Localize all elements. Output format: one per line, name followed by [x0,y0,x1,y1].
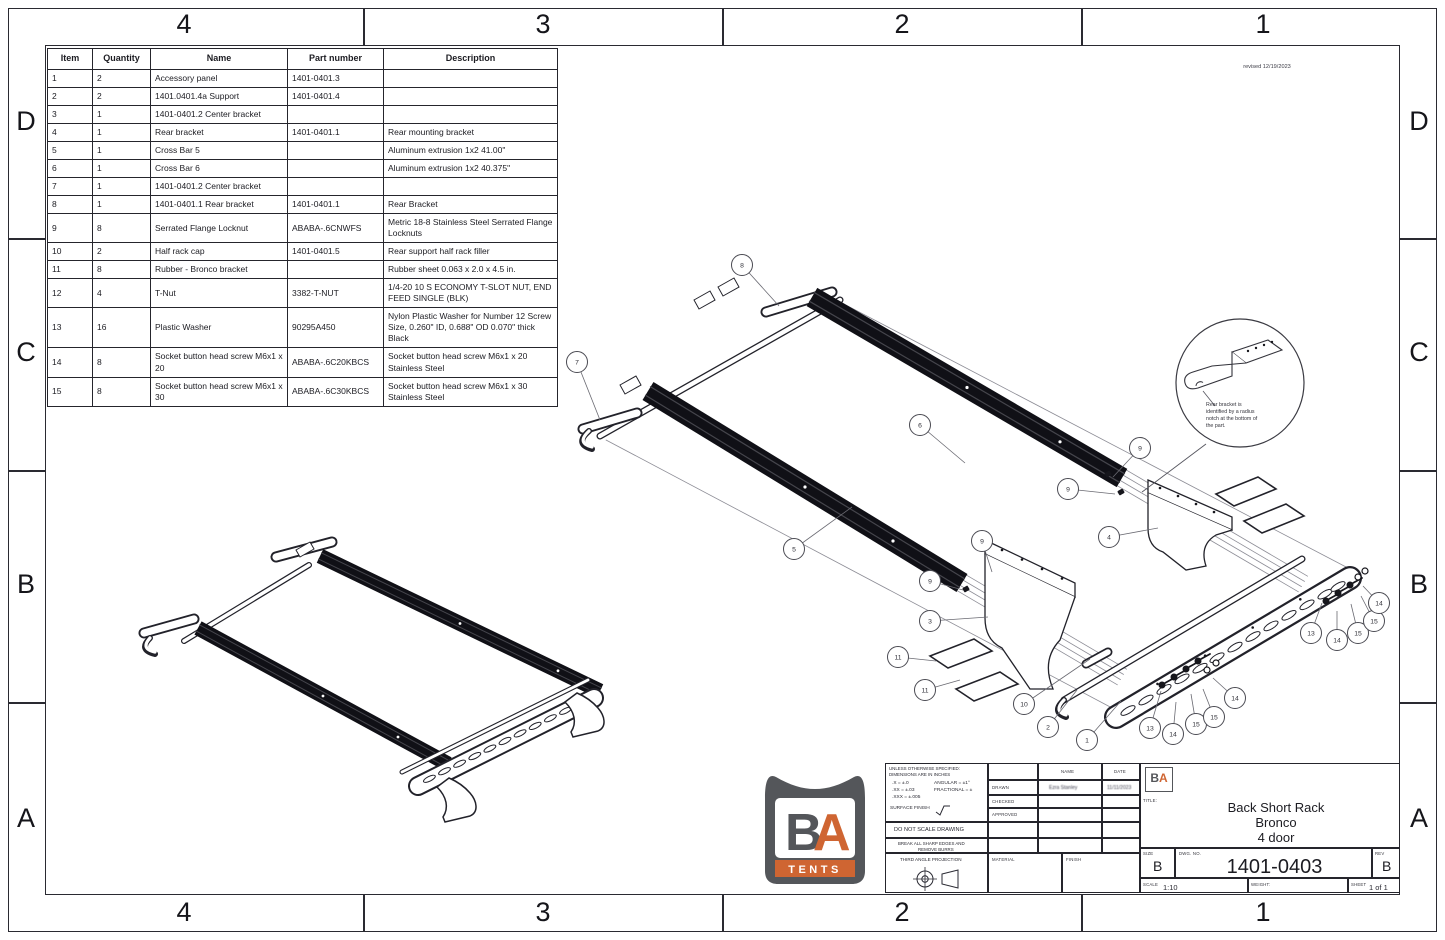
bom-cell-part: 1401-0401.4 [288,87,384,105]
svg-text:8: 8 [740,262,744,269]
bom-cell-item: 7 [48,177,93,195]
svg-text:3: 3 [928,618,932,625]
bom-cell-part: 3382-T-NUT [288,279,384,308]
bom-cell-part [288,141,384,159]
detail-text-line: identified by a radius [1206,409,1286,416]
svg-text:15: 15 [1210,714,1218,721]
half-rack-cap-shape [1086,652,1108,664]
material-cell: MATERIAL [988,853,1062,893]
bom-row: 158Socket button head screw M6x1 x 30ABA… [48,377,558,406]
balloon-14: 14 [1327,611,1348,651]
svg-text:9: 9 [928,578,932,585]
bom-cell-part: 1401-0401.3 [288,69,384,87]
bom-cell-qty: 8 [93,348,151,377]
bom-cell-qty: 1 [93,123,151,141]
bom-cell-qty: 2 [93,69,151,87]
bom-cell-name: Serrated Flange Locknut [151,214,288,243]
title-block: UNLESS OTHERWISE SPECIFIED: DIMENSIONS A… [885,763,1400,893]
finish-cell: FINISH [1062,853,1140,893]
balloon-14: 14 [1363,586,1390,614]
cross-bar-shape [196,625,449,767]
bom-cell-desc: Metric 18-8 Stainless Steel Serrated Fla… [384,214,558,243]
bom-cell-name: Socket button head screw M6x1 x 20 [151,348,288,377]
approved-name-cell [1038,808,1102,822]
bom-cell-desc: Rear mounting bracket [384,123,558,141]
bom-cell-part: 1401-0401.1 [288,196,384,214]
rev-cell: REV B [1372,848,1400,878]
bom-cell-qty: 2 [93,87,151,105]
bom-cell-qty: 8 [93,261,151,279]
blank-cell [1038,838,1102,853]
bom-row: 41Rear bracket1401-0401.1Rear mounting b… [48,123,558,141]
bom-cell-item: 5 [48,141,93,159]
bom-cell-qty: 2 [93,243,151,261]
weight-cell: WEIGHT: [1248,878,1348,893]
bom-cell-name: Socket button head screw M6x1 x 30 [151,377,288,406]
bom-cell-item: 13 [48,308,93,348]
bom-table: ItemQuantityNamePart numberDescription 1… [47,48,558,407]
bom-cell-item: 4 [48,123,93,141]
bom-cell-item: 15 [48,377,93,406]
checked-label-cell: CHECKED [988,795,1038,808]
balloon-11: 11 [915,680,961,701]
bom-cell-desc [384,177,558,195]
svg-text:14: 14 [1231,695,1239,702]
svg-text:14: 14 [1375,600,1383,607]
blank-cell [1102,838,1140,853]
bom-row: 124T-Nut3382-T-NUT1/4-20 10 S ECONOMY T-… [48,279,558,308]
svg-text:6: 6 [918,422,922,429]
bom-cell-part [288,261,384,279]
detail-callout-text: Rear bracket isidentified by a radiusnot… [1206,402,1286,430]
bom-header-cell: Item [48,49,93,70]
checked-name-cell [1038,795,1102,808]
detail-text-line: notch at the bottom of [1206,416,1286,423]
bom-cell-desc: Rubber sheet 0.063 x 2.0 x 4.5 in. [384,261,558,279]
drawn-date-cell: 11/11/2023 [1102,780,1140,795]
svg-text:15: 15 [1354,630,1362,637]
bom-header-cell: Description [384,49,558,70]
svg-text:2: 2 [1046,724,1050,731]
bom-cell-qty: 1 [93,177,151,195]
approved-date-cell [1102,808,1140,822]
balloon-9: 9 [1113,438,1151,478]
svg-text:4: 4 [1107,534,1111,541]
bom-row: 1316Plastic Washer90295A450Nylon Plastic… [48,308,558,348]
front-accessory-panel [418,698,594,786]
bom-cell-part: ABABA-.6C20KBCS [288,348,384,377]
balloon-15: 15 [1203,689,1225,728]
bom-cell-qty: 8 [93,214,151,243]
bom-cell-item: 10 [48,243,93,261]
size-cell: SIZE B [1140,848,1175,878]
bom-row: 61Cross Bar 6Aluminum extrusion 1x2 40.3… [48,159,558,177]
bom-cell-desc [384,69,558,87]
bom-cell-qty: 4 [93,279,151,308]
title-cell: BA TITLE: Back Short Rack Bronco 4 door [1140,763,1400,848]
detail-text-line: the part. [1206,423,1286,430]
bom-cell-qty: 8 [93,377,151,406]
svg-text:9: 9 [1138,445,1142,452]
third-angle-projection-icon [912,866,964,892]
bom-cell-desc: 1/4-20 10 S ECONOMY T-SLOT NUT, END FEED… [384,279,558,308]
balloon-11: 11 [888,647,937,668]
scale-cell: SCALE 1:10 [1140,878,1248,893]
bom-cell-item: 2 [48,87,93,105]
bom-cell-desc [384,87,558,105]
bom-row: 118Rubber - Bronco bracketRubber sheet 0… [48,261,558,279]
bom-cell-item: 6 [48,159,93,177]
bom-row: 51Cross Bar 5Aluminum extrusion 1x2 41.0… [48,141,558,159]
bom-cell-item: 3 [48,105,93,123]
bom-row: 98Serrated Flange LocknutABABA-.6CNWFSMe… [48,214,558,243]
drawn-name-cell: Ezra Stanley [1038,780,1102,795]
svg-text:9: 9 [980,538,984,545]
bom-row: 711401-0401.2 Center bracket [48,177,558,195]
balloon-14: 14 [1163,702,1184,745]
checked-date-cell [1102,795,1140,808]
center-bracket-shape [985,540,1075,689]
bom-cell-part: 1401-0401.1 [288,123,384,141]
blank-cell [988,822,1038,838]
blank-cell [1038,822,1102,838]
svg-text:15: 15 [1370,618,1378,625]
svg-text:1: 1 [1085,737,1089,744]
balloon-9: 9 [1058,479,1116,500]
bom-row: 221401.0401.4a Support1401-0401.4 [48,87,558,105]
bom-header-row: ItemQuantityNamePart numberDescription [48,49,558,70]
drawn-label-cell: DRAWN [988,780,1038,795]
balloon-8: 8 [732,255,780,307]
svg-text:5: 5 [792,546,796,553]
svg-text:13: 13 [1146,725,1154,732]
svg-text:15: 15 [1192,721,1200,728]
bom-row: 12Accessory panel1401-0401.3 [48,69,558,87]
svg-text:14: 14 [1169,731,1177,738]
name-date-header [988,763,1038,780]
bom-cell-name: 1401-0401.2 Center bracket [151,177,288,195]
small-logo: BA [1145,767,1173,792]
sheet-cell: SHEET 1 of 1 [1348,878,1400,893]
bom-cell-name: 1401-0401.2 Center bracket [151,105,288,123]
bom-cell-name: Half rack cap [151,243,288,261]
bom-cell-name: Accessory panel [151,69,288,87]
svg-text:9: 9 [1066,486,1070,493]
bom-row: 311401-0401.2 Center bracket [48,105,558,123]
small-logo-a: A [1159,771,1168,785]
blank-cell [988,838,1038,853]
bom-cell-part [288,177,384,195]
engineering-drawing-sheet: 4 3 2 1 4 3 2 1 D C B A D C B A revised … [0,0,1445,940]
balloon-14: 14 [1213,678,1246,709]
bom-cell-part: 1401-0401.5 [288,243,384,261]
bom-cell-part [288,105,384,123]
bom-cell-desc: Rear support half rack filler [384,243,558,261]
drawing-title: Back Short Rack Bronco 4 door [1171,800,1381,845]
balloon-3: 3 [920,611,989,632]
date-header-cell: DATE [1102,763,1140,780]
svg-text:13: 13 [1307,630,1315,637]
bom-cell-qty: 1 [93,141,151,159]
bom-cell-item: 9 [48,214,93,243]
bom-cell-desc: Socket button head screw M6x1 x 30 Stain… [384,377,558,406]
svg-text:11: 11 [921,687,928,694]
bom-cell-item: 14 [48,348,93,377]
tolerance-block: UNLESS OTHERWISE SPECIFIED: DIMENSIONS A… [885,763,988,822]
name-header-cell: NAME [1038,763,1102,780]
bom-cell-item: 11 [48,261,93,279]
svg-text:10: 10 [1020,701,1028,708]
balloon-6: 6 [910,415,966,464]
bom-cell-desc: Socket button head screw M6x1 x 20 Stain… [384,348,558,377]
bom-cell-item: 1 [48,69,93,87]
bom-cell-desc: Aluminum extrusion 1x2 41.00" [384,141,558,159]
bom-row: 102Half rack cap1401-0401.5Rear support … [48,243,558,261]
bom-cell-item: 12 [48,279,93,308]
bom-header-cell: Name [151,49,288,70]
break-edges-cell: BREAK ALL SHARP EDGES AND REMOVE BURRS [885,838,988,853]
bom-cell-name: Rubber - Bronco bracket [151,261,288,279]
bom-cell-desc: Rear Bracket [384,196,558,214]
cross-bar-6-shape [810,293,1125,483]
cross-bar-shape [319,553,602,694]
bom-header-cell: Part number [288,49,384,70]
logo-letter-a: A [813,804,851,862]
bom-cell-part: ABABA-.6CNWFS [288,214,384,243]
approved-label-cell: APPROVED [988,808,1038,822]
bom-cell-name: Rear bracket [151,123,288,141]
bom-cell-desc: Aluminum extrusion 1x2 40.375" [384,159,558,177]
bom-row: 148Socket button head screw M6x1 x 20ABA… [48,348,558,377]
do-not-scale-cell: DO NOT SCALE DRAWING [885,822,988,838]
bom-cell-name: Plastic Washer [151,308,288,348]
bom-cell-qty: 1 [93,196,151,214]
bom-cell-item: 8 [48,196,93,214]
bom-cell-qty: 16 [93,308,151,348]
bom-cell-qty: 1 [93,105,151,123]
bom-cell-desc: Nylon Plastic Washer for Number 12 Screw… [384,308,558,348]
bom-cell-part: 90295A450 [288,308,384,348]
balloon-7: 7 [567,352,601,421]
blank-cell [1102,822,1140,838]
bom-cell-name: Cross Bar 6 [151,159,288,177]
detail-text-line: Rear bracket is [1206,402,1286,409]
svg-text:7: 7 [575,359,579,366]
bom-cell-qty: 1 [93,159,151,177]
projection-cell: THIRD ANGLE PROJECTION [885,853,988,893]
bom-cell-name: T-Nut [151,279,288,308]
bom-cell-name: Cross Bar 5 [151,141,288,159]
bom-row: 811401-0401.1 Rear bracket1401-0401.1Rea… [48,196,558,214]
bom-cell-name: 1401-0401.1 Rear bracket [151,196,288,214]
surface-finish-icon [934,804,952,816]
bom-cell-name: 1401.0401.4a Support [151,87,288,105]
svg-text:11: 11 [894,654,901,661]
small-logo-b: B [1150,771,1159,785]
dwg-no-cell: DWG. NO. 1401-0403 [1175,848,1372,878]
bom-header-cell: Quantity [93,49,151,70]
company-logo: B A TENTS [758,768,872,886]
bom-cell-part [288,159,384,177]
assembled-view [144,542,604,822]
svg-text:14: 14 [1333,637,1341,644]
logo-tents-text: TENTS [788,864,842,876]
bom-cell-part: ABABA-.6C30KBCS [288,377,384,406]
bom-cell-desc [384,105,558,123]
balloon-5: 5 [784,507,853,560]
